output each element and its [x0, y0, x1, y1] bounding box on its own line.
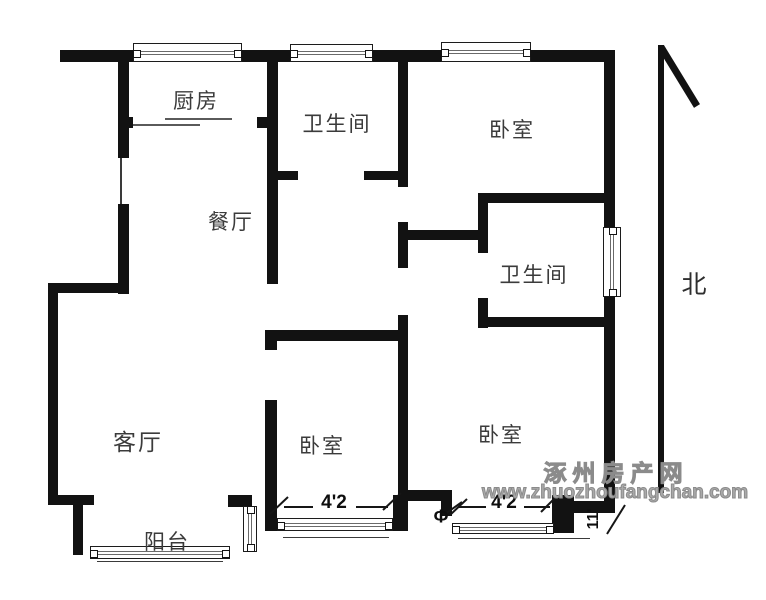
window-glass-line	[248, 511, 252, 547]
window-end-post	[609, 289, 617, 297]
wall-segment	[118, 117, 133, 128]
sliding-door-line	[133, 124, 200, 126]
wall-segment	[267, 50, 278, 284]
window	[133, 43, 242, 62]
room-label-bath-top: 卫生间	[303, 108, 372, 138]
window-end-post	[452, 526, 460, 534]
window-end-post	[247, 544, 255, 552]
window-end-post	[247, 506, 255, 514]
wall-opening-line	[120, 158, 122, 204]
room-label-dining: 餐厅	[208, 206, 254, 236]
room-label-bath-right: 卫生间	[500, 259, 569, 289]
sliding-door-line	[165, 118, 232, 120]
wall-segment	[257, 117, 278, 128]
wall-segment	[398, 315, 408, 497]
window-end-post	[133, 50, 141, 58]
wall-segment	[265, 330, 277, 350]
window-frame-line	[283, 537, 389, 538]
room-label-kitchen: 厨房	[173, 85, 219, 115]
north-arrow-head	[661, 47, 697, 106]
window	[243, 506, 257, 552]
window	[603, 227, 621, 297]
dimension-side-depth: 11'	[585, 509, 603, 530]
room-label-bedroom-right: 卧室	[478, 419, 524, 449]
wall-segment	[398, 222, 408, 268]
window-end-post	[222, 550, 230, 558]
window-end-post	[277, 522, 285, 530]
wall-segment	[398, 50, 408, 187]
window-glass-line	[282, 523, 388, 527]
window-frame-line	[97, 561, 223, 562]
wall-segment	[278, 171, 298, 180]
window-end-post	[234, 50, 242, 58]
wall-segment	[364, 171, 398, 180]
window-glass-line	[446, 50, 526, 54]
room-label-bedroom-mid: 卧室	[299, 430, 345, 460]
wall-segment	[240, 50, 292, 62]
north-arrow-shaft	[658, 45, 664, 493]
wall-segment	[265, 330, 407, 341]
wall-segment	[478, 317, 614, 327]
window-glass-line	[457, 527, 549, 531]
wall-segment	[48, 283, 58, 505]
window-end-post	[441, 49, 449, 57]
window-end-post	[546, 526, 554, 534]
window-end-post	[90, 550, 98, 558]
wall-segment	[48, 495, 94, 505]
window-frame-line	[458, 538, 590, 539]
window-glass-line	[295, 51, 368, 55]
room-label-balcony: 阳台	[144, 526, 190, 556]
wall-segment	[478, 193, 614, 203]
wall-segment	[118, 50, 129, 158]
window	[277, 518, 393, 531]
dimension-mid-window: 4'2	[321, 492, 347, 514]
window-end-post	[290, 50, 298, 58]
wall-segment	[265, 400, 277, 497]
column-symbol: Φ	[434, 507, 449, 528]
window-end-post	[609, 227, 617, 235]
wall-segment	[529, 50, 615, 62]
window-glass-line	[138, 51, 237, 55]
wall-segment	[73, 505, 83, 555]
window-glass-line	[610, 232, 614, 292]
wall-segment	[408, 230, 480, 240]
wall-segment	[478, 193, 488, 253]
window-end-post	[385, 522, 393, 530]
window-end-post	[523, 49, 531, 57]
wall-segment	[265, 495, 277, 531]
wall-segment	[118, 204, 129, 294]
room-label-living: 客厅	[113, 423, 163, 457]
window	[441, 42, 531, 62]
compass-north-label: 北	[681, 265, 706, 301]
window	[290, 44, 373, 62]
window	[452, 523, 554, 534]
window-end-post	[365, 50, 373, 58]
wall-segment	[50, 283, 128, 293]
dimension-lines-layer	[0, 0, 766, 600]
floor-plan: 厨房 卫生间 卧室 餐厅 卫生间 客厅 卧室 卧室 阳台 北 4'2 4'2 1…	[0, 0, 766, 600]
watermark-site-url: www.zhuozhoufangchan.com	[482, 482, 748, 504]
room-label-bedroom-top: 卧室	[489, 114, 535, 144]
